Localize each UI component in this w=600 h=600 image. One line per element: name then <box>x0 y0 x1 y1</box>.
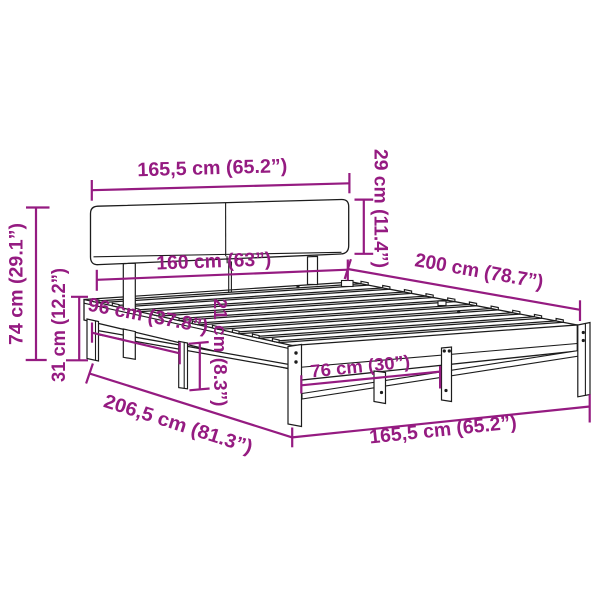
svg-text:160 cm (63”): 160 cm (63”) <box>156 248 272 274</box>
svg-text:165,5 cm (65.2”): 165,5 cm (65.2”) <box>368 411 517 448</box>
svg-text:165,5 cm (65.2”): 165,5 cm (65.2”) <box>137 155 288 181</box>
svg-text:200 cm (78.7”): 200 cm (78.7”) <box>413 249 545 293</box>
svg-text:74 cm (29.1”): 74 cm (29.1”) <box>6 223 28 345</box>
svg-text:21 cm (8.3”): 21 cm (8.3”) <box>210 299 231 407</box>
svg-text:29 cm (11.4”): 29 cm (11.4”) <box>370 149 392 268</box>
svg-text:31 cm (12.2”): 31 cm (12.2”) <box>48 268 70 382</box>
